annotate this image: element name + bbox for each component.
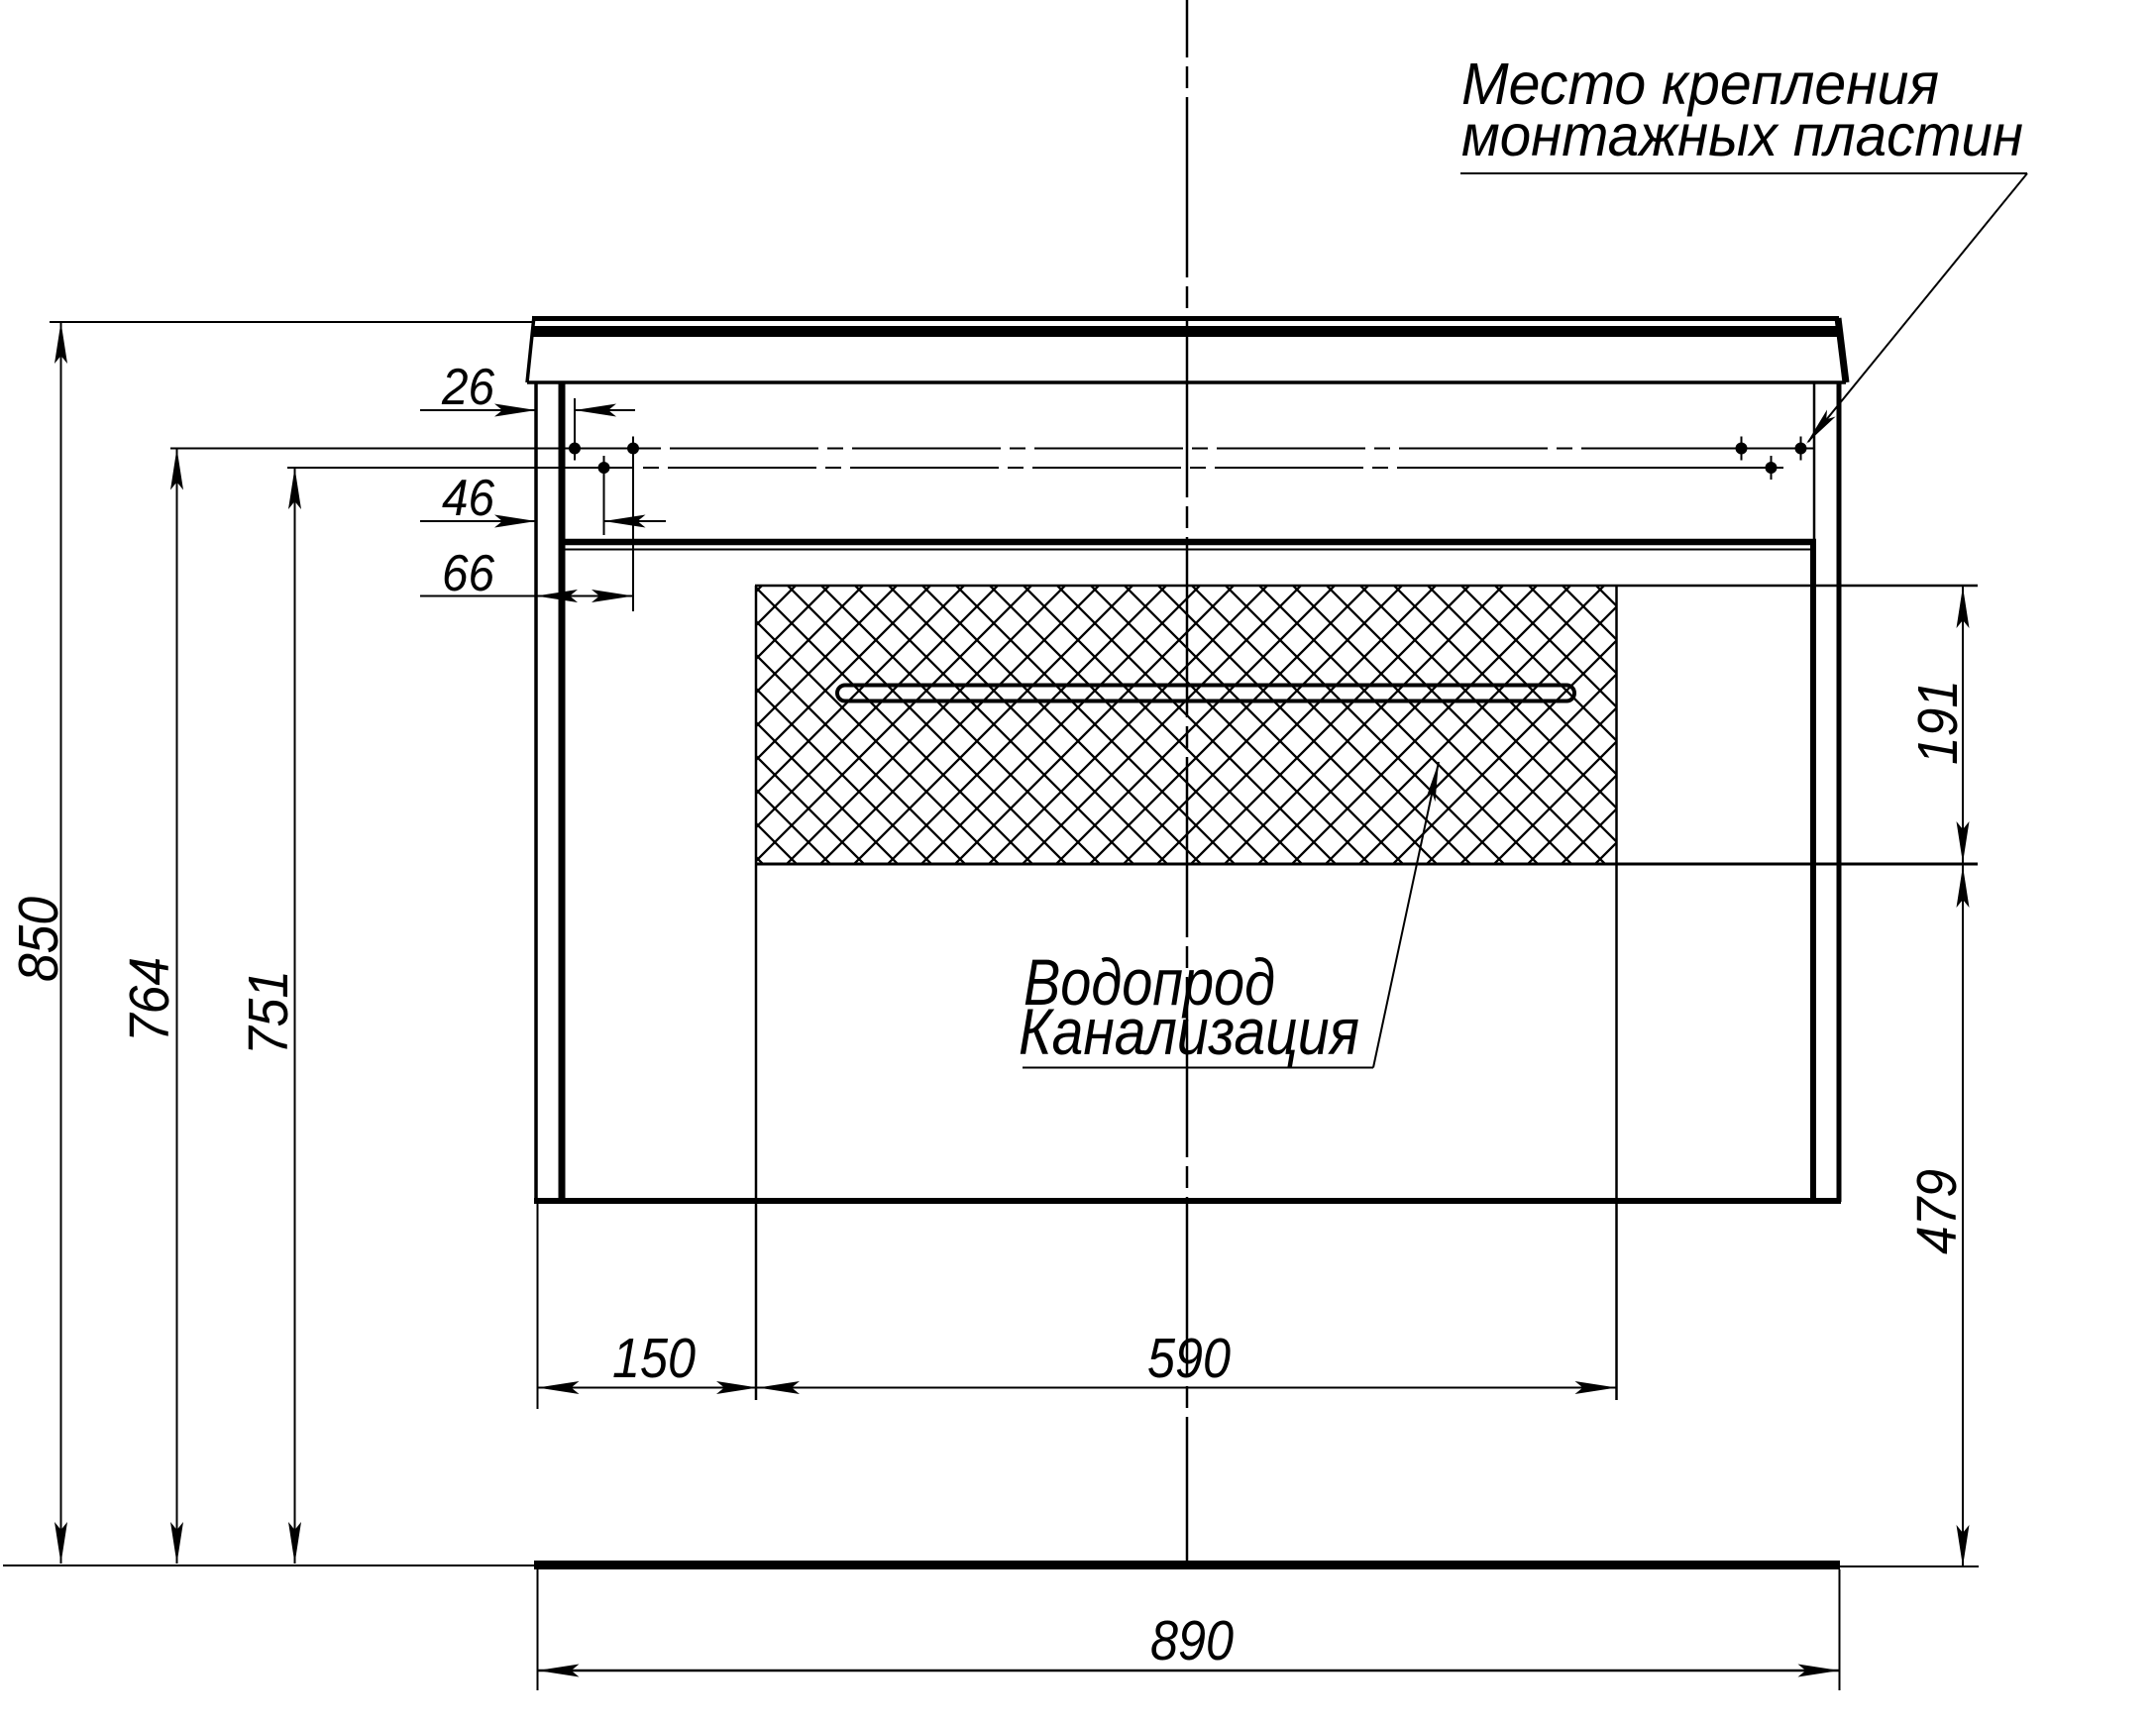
svg-text:764: 764	[118, 957, 181, 1042]
svg-text:46: 46	[442, 470, 494, 527]
svg-text:26: 26	[441, 359, 494, 416]
svg-text:850: 850	[7, 897, 70, 982]
svg-text:479: 479	[1905, 1169, 1969, 1254]
svg-text:890: 890	[1150, 1609, 1234, 1672]
svg-text:66: 66	[442, 545, 494, 602]
svg-text:Канализация: Канализация	[1019, 995, 1359, 1068]
svg-text:150: 150	[612, 1327, 696, 1390]
svg-text:590: 590	[1147, 1327, 1231, 1390]
svg-text:751: 751	[237, 970, 300, 1055]
svg-text:191: 191	[1906, 680, 1970, 765]
svg-text:монтажных пластин: монтажных пластин	[1461, 103, 2023, 168]
